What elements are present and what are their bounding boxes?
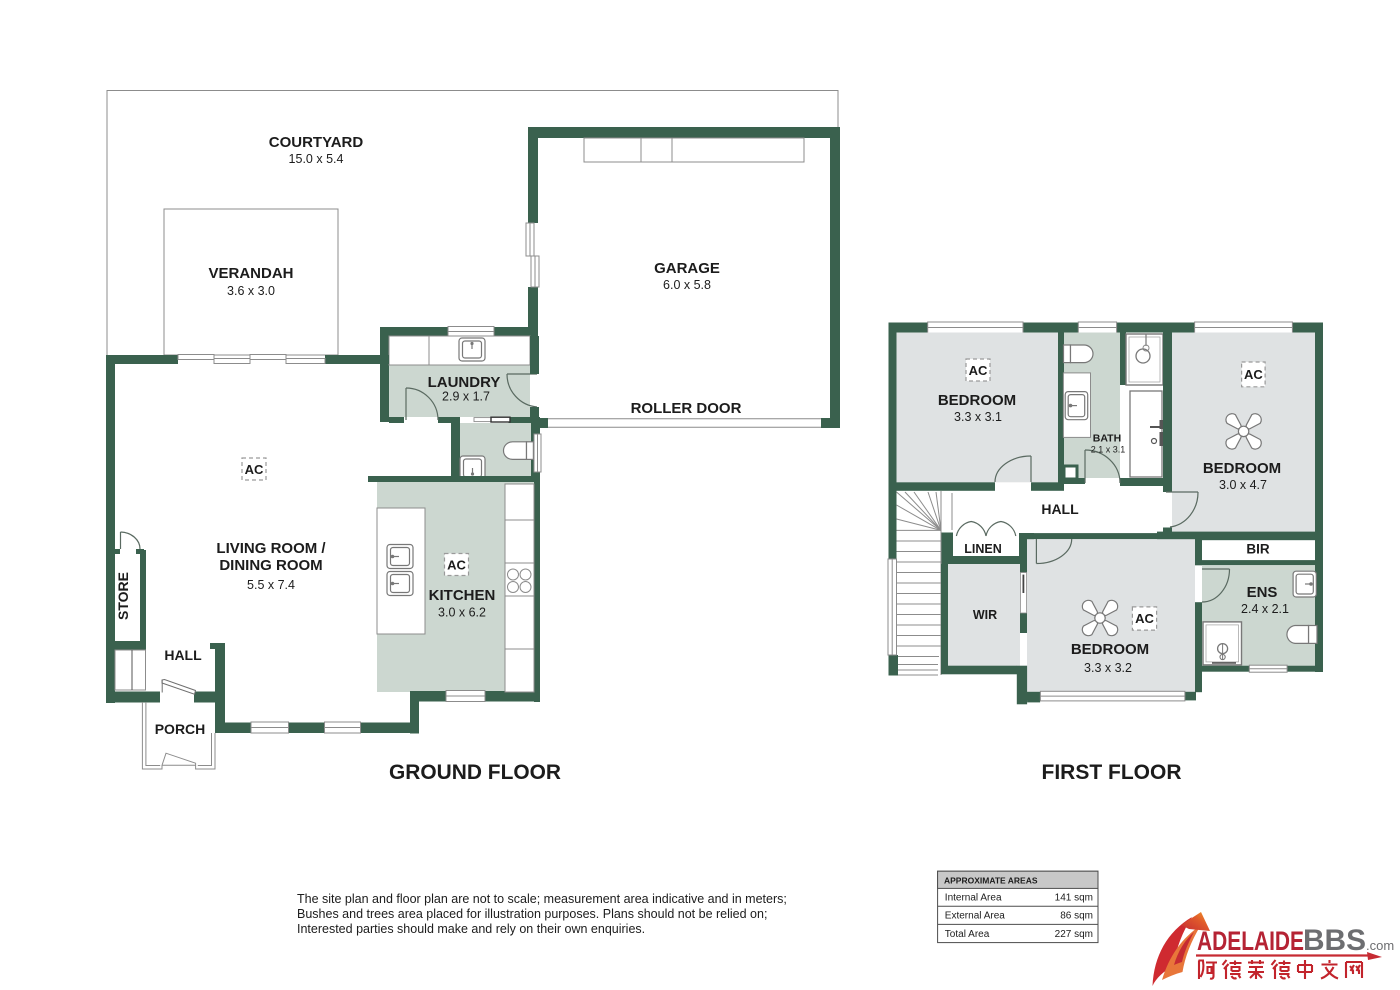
svg-text:BEDROOM: BEDROOM: [938, 392, 1016, 409]
svg-text:Internal Area: Internal Area: [945, 893, 1002, 904]
svg-text:DINING ROOM: DINING ROOM: [219, 557, 322, 574]
svg-text:86 sqm: 86 sqm: [1060, 911, 1093, 922]
svg-text:HALL: HALL: [1041, 501, 1079, 517]
svg-text:BIR: BIR: [1246, 542, 1270, 557]
svg-text:External Area: External Area: [945, 911, 1005, 922]
svg-text:.com: .com: [1366, 938, 1394, 953]
svg-text:KITCHEN: KITCHEN: [429, 587, 496, 604]
svg-text:LINEN: LINEN: [964, 542, 1002, 556]
svg-text:5.5 x 7.4: 5.5 x 7.4: [247, 578, 295, 592]
svg-text:3.0 x 4.7: 3.0 x 4.7: [1219, 478, 1267, 492]
svg-text:The site plan and floor plan a: The site plan and floor plan are not to …: [297, 892, 787, 906]
svg-text:3.3 x 3.1: 3.3 x 3.1: [954, 410, 1002, 424]
svg-text:227 sqm: 227 sqm: [1055, 929, 1093, 940]
svg-text:3.6 x 3.0: 3.6 x 3.0: [227, 284, 275, 298]
svg-text:2.9 x 1.7: 2.9 x 1.7: [442, 390, 490, 404]
svg-text:ROLLER DOOR: ROLLER DOOR: [631, 400, 742, 417]
svg-text:3.0 x 6.2: 3.0 x 6.2: [438, 606, 486, 620]
svg-text:ADELAIDE: ADELAIDE: [1197, 926, 1304, 956]
svg-text:PORCH: PORCH: [155, 721, 206, 737]
svg-text:3.3 x 3.2: 3.3 x 3.2: [1084, 661, 1132, 675]
svg-text:ENS: ENS: [1247, 584, 1278, 601]
svg-text:BEDROOM: BEDROOM: [1071, 641, 1149, 658]
svg-text:VERANDAH: VERANDAH: [208, 265, 293, 282]
svg-text:FIRST FLOOR: FIRST FLOOR: [1042, 761, 1182, 784]
svg-text:LIVING ROOM /: LIVING ROOM /: [216, 540, 326, 557]
svg-text:AC: AC: [1244, 367, 1263, 382]
svg-text:AC: AC: [969, 363, 988, 378]
svg-text:6.0 x 5.8: 6.0 x 5.8: [663, 278, 711, 292]
svg-text:2.1 x 3.1: 2.1 x 3.1: [1091, 445, 1126, 455]
svg-text:BEDROOM: BEDROOM: [1203, 460, 1281, 477]
svg-text:AC: AC: [245, 462, 264, 477]
svg-text:BATH: BATH: [1093, 433, 1121, 445]
svg-text:HALL: HALL: [164, 647, 202, 663]
svg-text:GROUND FLOOR: GROUND FLOOR: [389, 761, 561, 784]
svg-text:WIR: WIR: [973, 608, 997, 622]
svg-text:Bushes and trees area placed f: Bushes and trees area placed for illustr…: [297, 907, 767, 921]
svg-text:Total Area: Total Area: [945, 929, 990, 940]
svg-text:2.4 x 2.1: 2.4 x 2.1: [1241, 602, 1289, 616]
svg-text:15.0 x 5.4: 15.0 x 5.4: [289, 152, 344, 166]
svg-text:BBS: BBS: [1303, 924, 1366, 957]
svg-text:LAUNDRY: LAUNDRY: [428, 374, 501, 391]
svg-text:AC: AC: [1135, 611, 1154, 626]
svg-text:Interested parties should make: Interested parties should make and rely …: [297, 922, 645, 936]
svg-text:COURTYARD: COURTYARD: [269, 134, 364, 151]
svg-text:APPROXIMATE AREAS: APPROXIMATE AREAS: [944, 876, 1038, 886]
svg-text:AC: AC: [447, 558, 466, 573]
svg-text:141 sqm: 141 sqm: [1055, 893, 1093, 904]
svg-text:GARAGE: GARAGE: [654, 260, 720, 277]
svg-text:STORE: STORE: [115, 572, 131, 620]
